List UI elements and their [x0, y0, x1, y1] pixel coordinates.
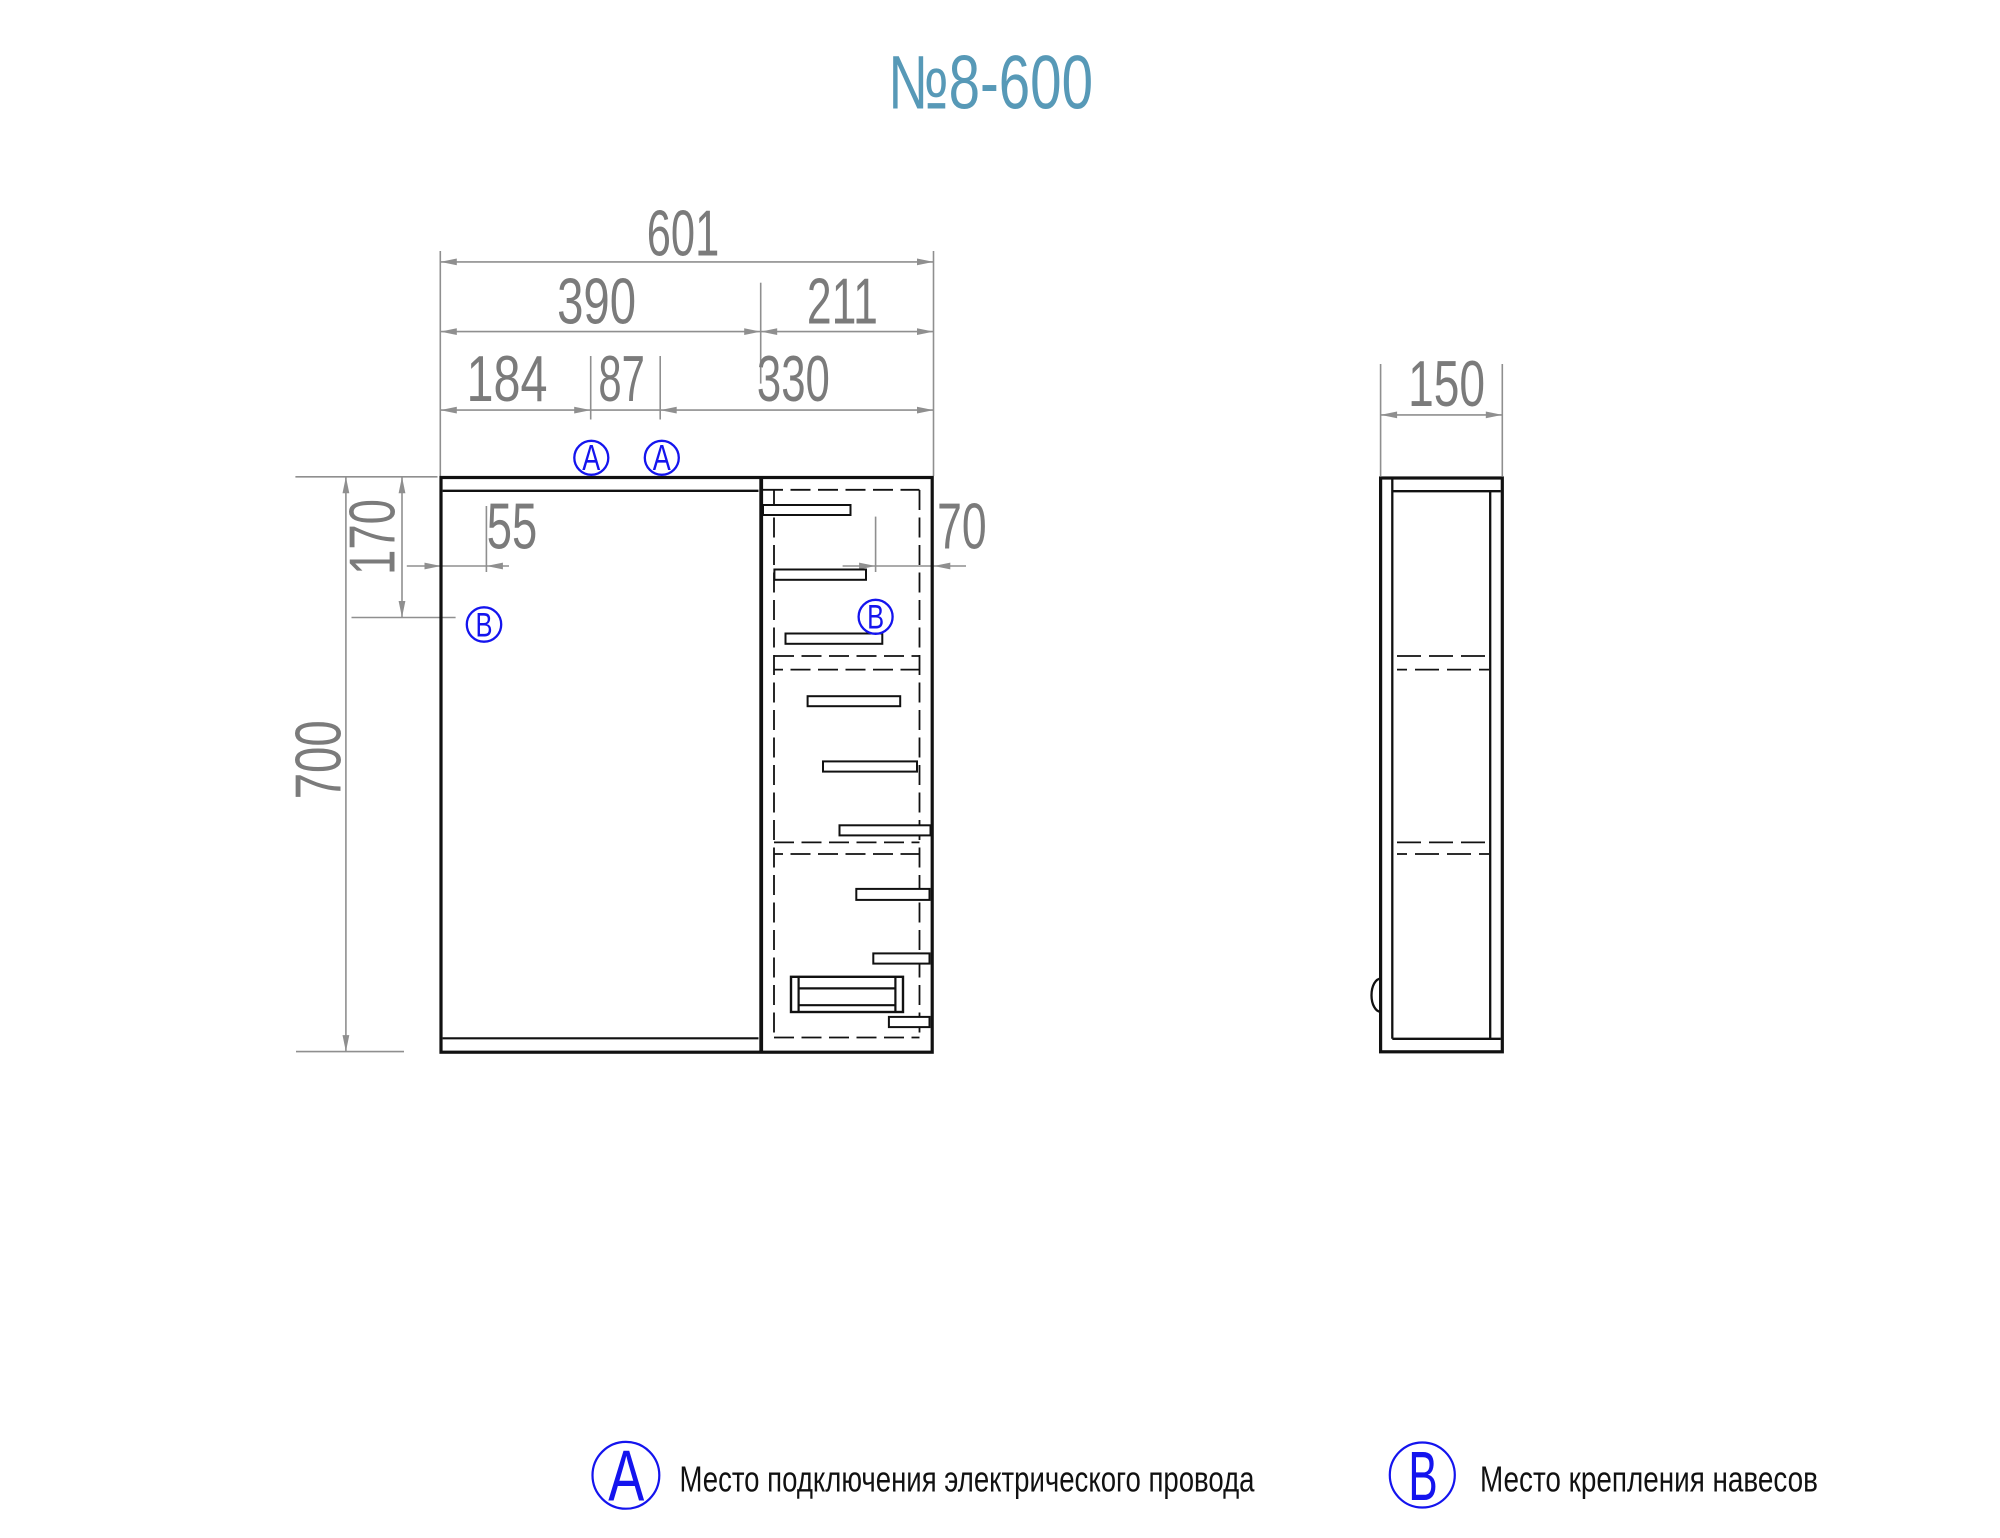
svg-text:390: 390	[557, 266, 636, 338]
svg-text:184: 184	[467, 343, 548, 415]
svg-text:A: A	[582, 437, 600, 478]
svg-text:70: 70	[937, 490, 987, 562]
svg-text:211: 211	[807, 266, 878, 338]
svg-text:601: 601	[647, 197, 720, 269]
svg-text:Место крепления навесов: Место крепления навесов	[1480, 1459, 1818, 1500]
svg-text:170: 170	[337, 499, 409, 575]
svg-text:150: 150	[1408, 348, 1485, 420]
svg-text:55: 55	[487, 490, 538, 562]
svg-text:Место подключения электрическо: Место подключения электрического провода	[680, 1459, 1256, 1500]
svg-text:B: B	[867, 599, 884, 637]
svg-text:№8-600: №8-600	[888, 41, 1093, 126]
svg-text:330: 330	[757, 343, 830, 415]
svg-text:87: 87	[598, 343, 645, 415]
svg-text:A: A	[608, 1437, 644, 1517]
svg-text:B: B	[1408, 1437, 1438, 1515]
svg-text:700: 700	[283, 720, 355, 799]
svg-text:A: A	[653, 437, 671, 478]
svg-text:B: B	[476, 606, 493, 644]
